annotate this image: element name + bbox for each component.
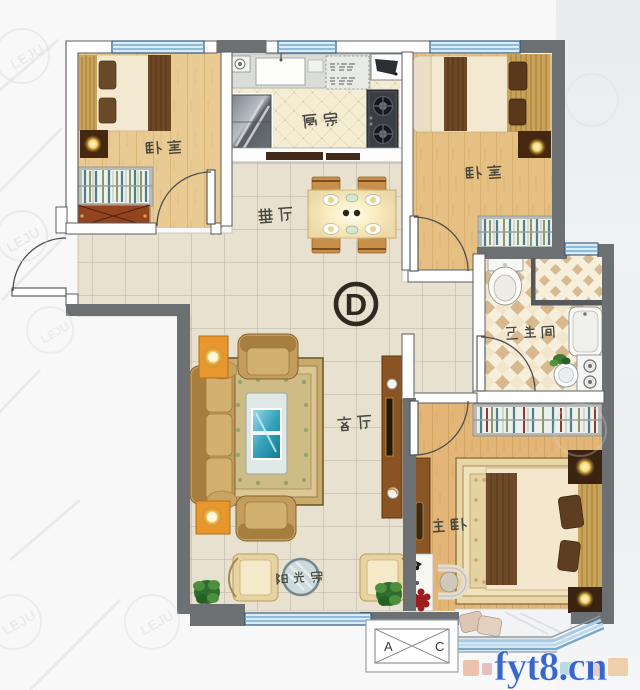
- svg-text:A: A: [384, 639, 393, 654]
- svg-text:C: C: [435, 639, 444, 654]
- svg-text:D: D: [345, 287, 367, 322]
- svg-text:fyt8.cn: fyt8.cn: [494, 643, 608, 689]
